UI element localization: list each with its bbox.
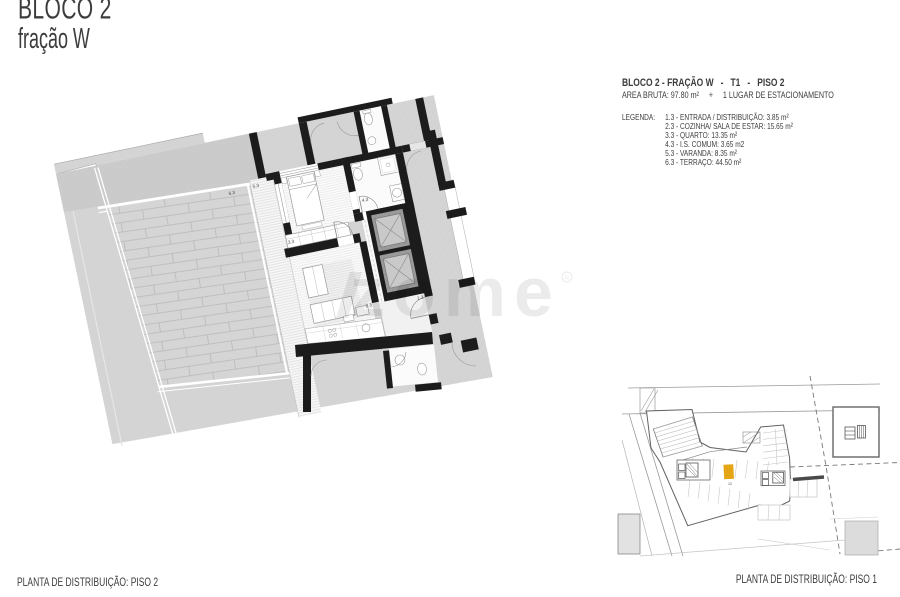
svg-text:12: 12 xyxy=(728,482,732,486)
svg-text:PLANTA DE DISTRIBUIÇÃO: PISO 2: PLANTA DE DISTRIBUIÇÃO: PISO 2 xyxy=(17,575,158,590)
svg-text:R: R xyxy=(565,275,570,282)
svg-text:BLOCO 2 - FRAÇÃO W - T1: BLOCO 2 - FRAÇÃO W - T1 - PISO 2 xyxy=(622,77,785,89)
svg-text:LEGENDA:: LEGENDA: xyxy=(622,112,655,122)
svg-text:PLANTA DE DISTRIBUIÇÃO: PISO 1: PLANTA DE DISTRIBUIÇÃO: PISO 1 xyxy=(736,572,877,587)
svg-text:AREA BRUTA: 97.80 m² +: AREA BRUTA: 97.80 m² + 1 LUGAR DE ESTACI… xyxy=(622,89,834,100)
svg-text:fração W: fração W xyxy=(18,23,90,55)
svg-text:6.3 - TERRAÇO: 44.50 m²: 6.3 - TERRAÇO: 44.50 m² xyxy=(665,157,742,167)
svg-text:BLOCO 2: BLOCO 2 xyxy=(18,0,112,26)
svg-text:zome: zome xyxy=(350,253,561,331)
